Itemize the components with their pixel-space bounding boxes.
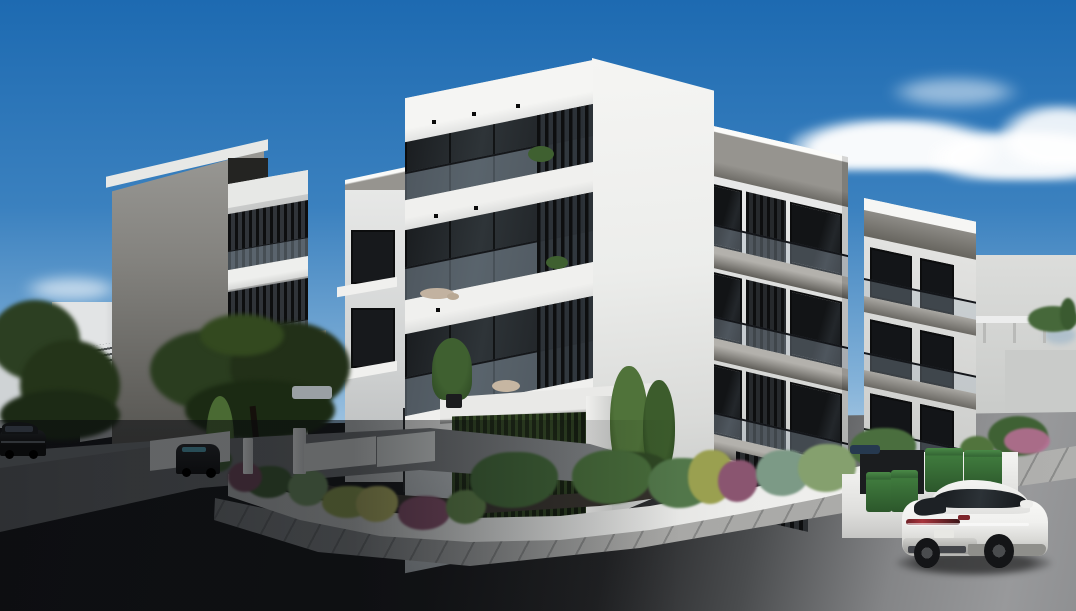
suv-plate [934,530,954,538]
suv-mirror [1020,500,1033,508]
pergola-post-2 [1013,323,1016,343]
sedan-wheel-b [29,450,38,459]
cloud-right-wisp [890,76,1020,108]
downlight-3 [516,104,520,108]
sedan-glass [5,426,33,432]
cloud-left [24,276,120,302]
cloud-right-c [1000,104,1076,166]
balcony-chairs-f1 [492,380,520,392]
right-bed-pink [1004,428,1050,454]
suv-crease-highlight [907,523,1029,526]
scene-apartment-render [0,0,1076,611]
downlight-4 [434,214,438,218]
window [351,308,395,368]
balcony-conifer [432,338,472,400]
window [351,230,395,284]
suv-tail-light-b [958,515,970,520]
street-car-wheel-b [206,468,216,478]
sedan-wheel-a [5,450,14,459]
bin-1 [866,472,892,512]
downlight-6 [436,308,440,312]
balcony-table-f2 [447,293,459,300]
building-shadow [0,420,680,611]
suv-wheel-front [984,534,1014,568]
balcony-sofa-left-building [292,386,332,399]
street-car-wheel-a [182,468,191,477]
pergola-post-1 [983,323,986,343]
car-behind-wall-roof [850,445,880,454]
roof-garden-tree [1060,298,1076,330]
suv-wheel-rear [914,538,940,568]
street-car-glint [182,447,206,452]
balcony-plant-mid [546,256,568,269]
street-tree-canopy-top [200,314,284,356]
balcony-conifer-pot [446,394,462,408]
downlight-1 [432,120,436,124]
sedan-trim [1,441,45,443]
corner-slat-screen [537,296,593,389]
balcony-plant-top [528,146,554,162]
downlight-5 [474,206,478,210]
downlight-2 [472,112,476,116]
